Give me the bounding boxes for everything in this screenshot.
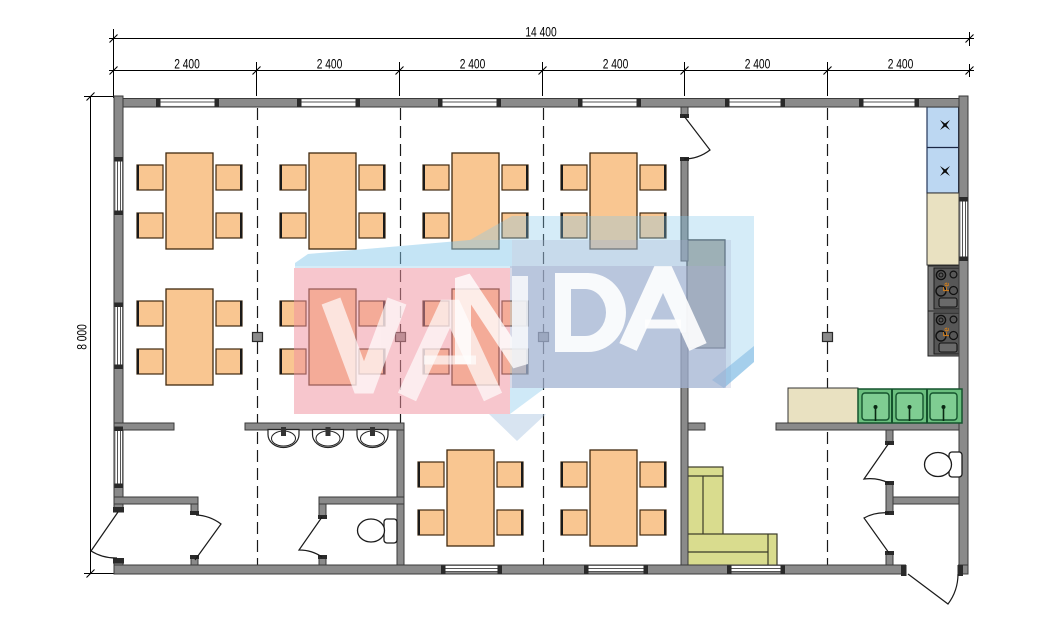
svg-text:8 000: 8 000 <box>74 324 90 350</box>
svg-text:2 400: 2 400 <box>460 56 486 72</box>
svg-text:Fe: Fe <box>942 327 951 337</box>
svg-text:14 400: 14 400 <box>525 24 557 40</box>
svg-text:Fe: Fe <box>942 282 951 292</box>
svg-text:2 400: 2 400 <box>603 56 629 72</box>
svg-text:2 400: 2 400 <box>174 56 200 72</box>
svg-text:2 400: 2 400 <box>888 56 914 72</box>
svg-text:2 400: 2 400 <box>317 56 343 72</box>
svg-text:2 400: 2 400 <box>745 56 771 72</box>
